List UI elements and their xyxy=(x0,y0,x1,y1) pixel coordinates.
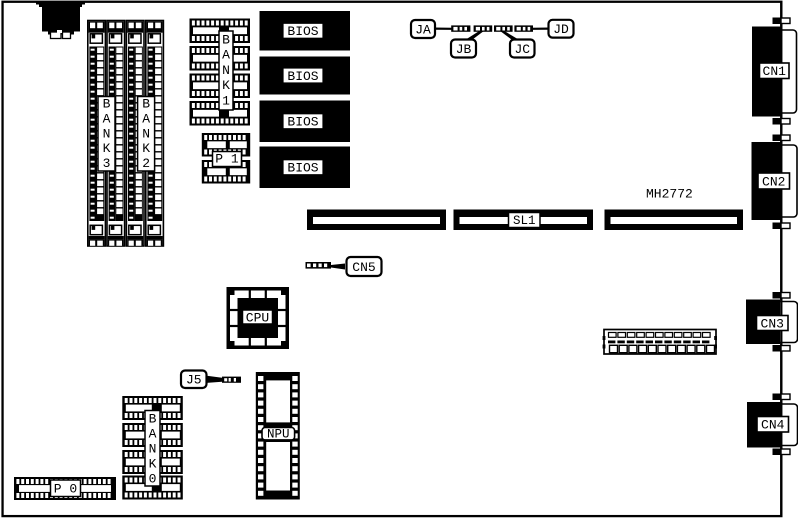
svg-text:0: 0 xyxy=(149,472,157,487)
svg-text:N: N xyxy=(142,126,150,141)
svg-text:A: A xyxy=(222,48,230,63)
svg-text:J5: J5 xyxy=(186,373,202,388)
svg-text:CN5: CN5 xyxy=(352,260,375,275)
svg-text:CN3: CN3 xyxy=(761,316,784,331)
svg-text:K: K xyxy=(222,78,230,93)
svg-text:CPU: CPU xyxy=(246,310,269,325)
svg-text:N: N xyxy=(149,442,157,457)
svg-text:B: B xyxy=(222,33,230,48)
svg-text:BIOS: BIOS xyxy=(287,115,318,130)
svg-text:N: N xyxy=(222,63,230,78)
svg-text:CN4: CN4 xyxy=(761,418,785,433)
svg-text:A: A xyxy=(103,111,111,126)
svg-text:A: A xyxy=(149,427,157,442)
svg-text:B: B xyxy=(142,97,150,112)
svg-text:B: B xyxy=(149,412,157,427)
svg-text:JB: JB xyxy=(456,42,472,57)
svg-text:K: K xyxy=(103,141,111,156)
svg-text:BIOS: BIOS xyxy=(287,24,318,39)
svg-text:BIOS: BIOS xyxy=(287,69,318,84)
svg-text:K: K xyxy=(142,141,150,156)
svg-text:JC: JC xyxy=(514,42,530,57)
svg-text:CN1: CN1 xyxy=(763,64,787,79)
svg-text:BIOS: BIOS xyxy=(287,161,318,176)
svg-text:MH2772: MH2772 xyxy=(646,187,693,202)
svg-text:B: B xyxy=(103,97,111,112)
svg-text:P 1: P 1 xyxy=(215,152,239,167)
svg-text:2: 2 xyxy=(142,156,150,171)
svg-text:K: K xyxy=(149,457,157,472)
svg-text:CN2: CN2 xyxy=(762,174,785,189)
svg-text:SL1: SL1 xyxy=(513,214,536,228)
svg-text:N: N xyxy=(103,126,111,141)
svg-text:NPU: NPU xyxy=(267,427,290,441)
svg-text:P 0: P 0 xyxy=(54,482,77,497)
svg-text:JD: JD xyxy=(553,22,569,37)
svg-text:3: 3 xyxy=(103,156,111,171)
svg-text:A: A xyxy=(142,111,150,126)
svg-text:1: 1 xyxy=(222,93,230,108)
svg-text:JA: JA xyxy=(415,22,431,37)
